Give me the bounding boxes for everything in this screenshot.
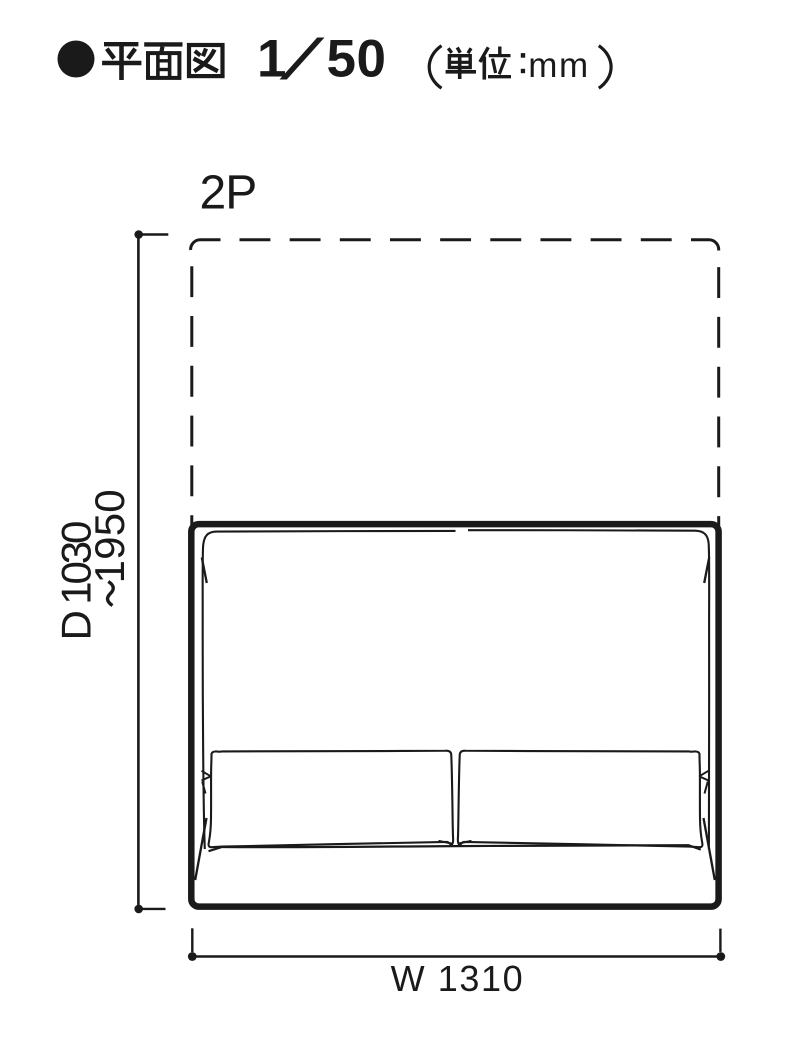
svg-text:mm: mm	[528, 46, 590, 85]
svg-text:1: 1	[257, 30, 286, 89]
svg-text:W 1310: W 1310	[391, 958, 525, 999]
svg-text:50: 50	[327, 30, 387, 89]
svg-text:1950: 1950	[86, 489, 133, 583]
svg-text:2P: 2P	[200, 166, 257, 219]
